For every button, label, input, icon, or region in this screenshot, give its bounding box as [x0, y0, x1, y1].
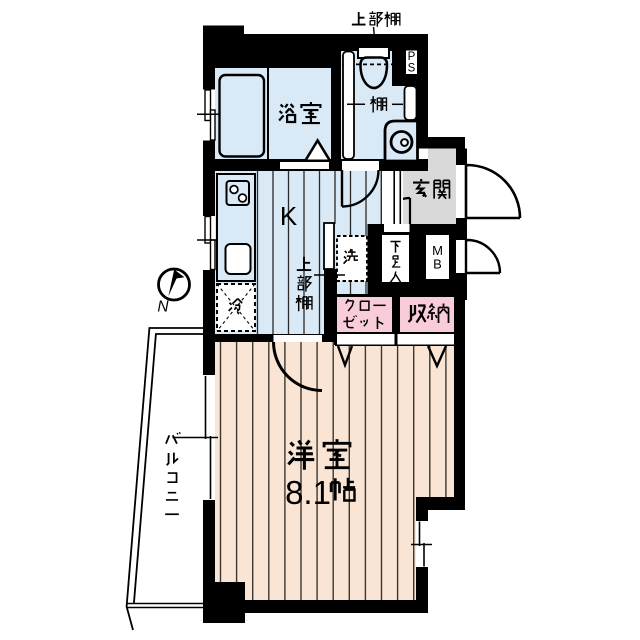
svg-text:K: K — [280, 201, 298, 231]
svg-text:B: B — [433, 257, 442, 272]
svg-text:8.1: 8.1 — [285, 474, 331, 511]
svg-text:P: P — [408, 51, 416, 63]
svg-text:S: S — [408, 63, 416, 75]
svg-text:N: N — [157, 299, 169, 316]
